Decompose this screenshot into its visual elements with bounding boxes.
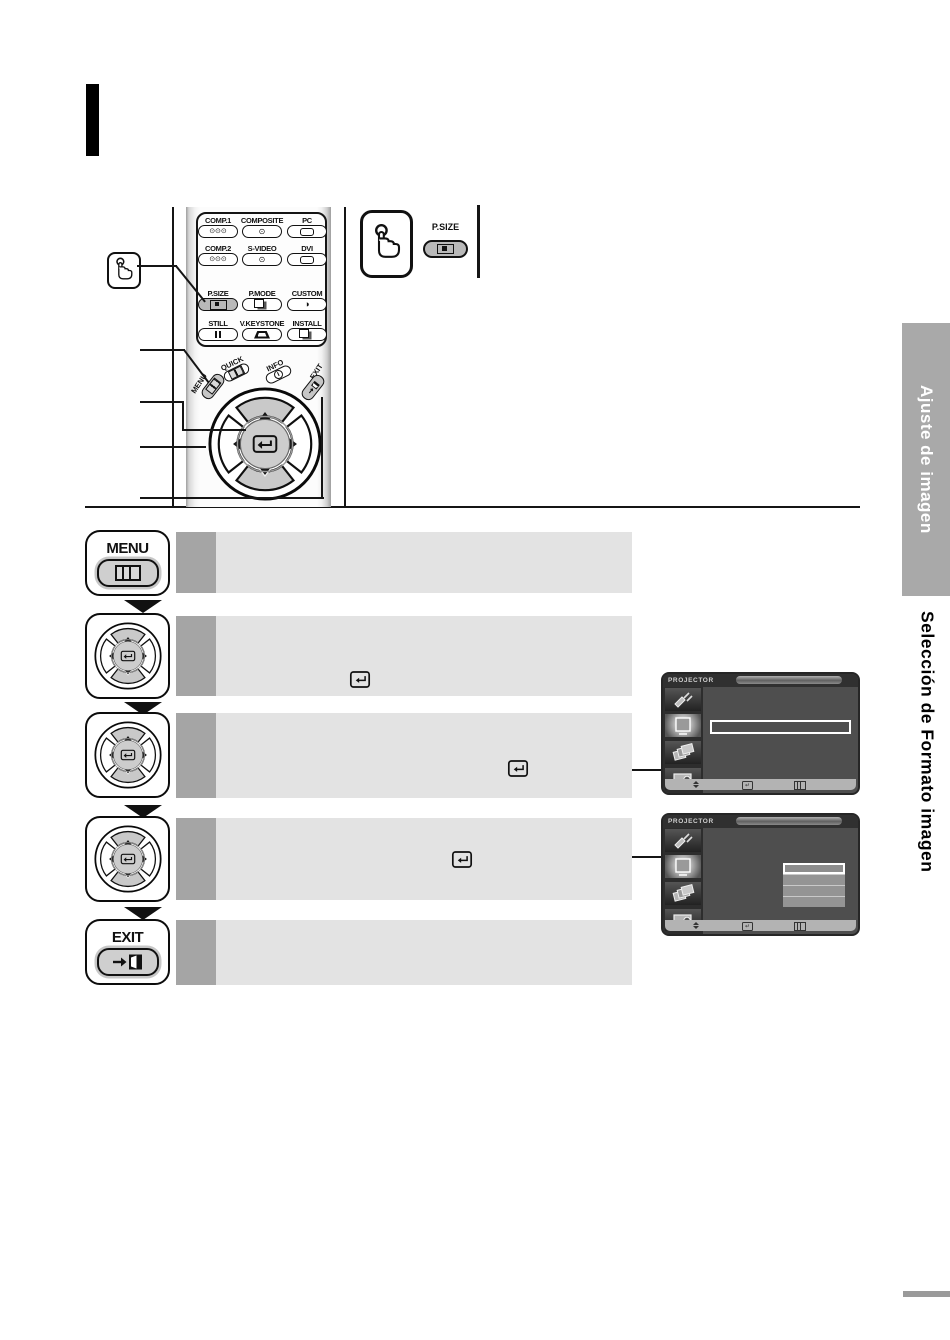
- step5-instruction-row: [176, 920, 632, 985]
- step-number-box: [176, 616, 216, 696]
- move-updown-icon: [693, 781, 699, 788]
- picture-size-icon: [437, 244, 454, 254]
- step-text-bar: [216, 920, 632, 985]
- triple-rca-icon: [209, 256, 227, 263]
- picture-icon: [665, 855, 701, 878]
- step2-dpad-key: [85, 613, 170, 699]
- layers-icon: [665, 741, 701, 764]
- enter-key-icon: [507, 760, 529, 777]
- osd-title: PROJECTOR: [668, 677, 714, 684]
- exit-key-label: EXIT: [112, 929, 143, 946]
- step-number-box: [176, 713, 216, 798]
- page-footer-bar: [903, 1291, 950, 1297]
- section-subtitle: Selección de Formato imagen: [906, 612, 948, 872]
- step2-instruction-row: [176, 616, 632, 696]
- step-text-bar: [216, 713, 632, 798]
- step-text-bar: [216, 616, 632, 696]
- osd-title-pill: [736, 817, 842, 825]
- picture-size-icon: [210, 300, 227, 310]
- input-source-icon: [665, 688, 701, 711]
- enter-icon: ↵: [742, 781, 753, 790]
- osd-bottom-bar: ↵: [665, 779, 856, 790]
- menu-icon: [794, 781, 806, 790]
- layers-icon: [665, 882, 701, 905]
- step-text-bar: [216, 818, 632, 900]
- remote-button-comp2: COMP.2: [195, 244, 241, 266]
- remote-button-install: INSTALL: [284, 319, 330, 341]
- remote-button-composite: COMPOSITE: [239, 216, 285, 238]
- step3-instruction-row: [176, 713, 632, 798]
- enter-icon: ↵: [742, 922, 753, 931]
- enter-key-icon: [451, 851, 473, 868]
- connector-line-screen1: [632, 769, 662, 771]
- dpad-icon: [93, 824, 163, 894]
- dsub-connector-icon: [300, 228, 314, 236]
- osd-sidebar: [663, 687, 703, 793]
- menu-key-label: MENU: [106, 540, 148, 557]
- remote-button-dvi: DVI: [284, 244, 330, 266]
- chapter-tab-label: Ajuste de imagen: [916, 385, 936, 534]
- press-button-hand-icon: [360, 210, 413, 278]
- info-icon: [272, 368, 284, 380]
- callout-line-exit-h: [140, 497, 324, 499]
- menu-grid-icon: [115, 565, 141, 581]
- connector-line-screen2: [632, 856, 662, 858]
- input-source-icon: [665, 829, 701, 852]
- callout-line-exit-v: [321, 397, 323, 499]
- osd-bottom-bar: ↵: [665, 920, 856, 931]
- remote-button-still: STILL: [195, 319, 241, 341]
- callout-line-enter-v: [182, 401, 184, 431]
- step1-menu-key: MENU: [85, 530, 170, 596]
- osd-title-pill: [736, 676, 842, 684]
- osd-sidebar: [663, 828, 703, 934]
- osd-option: [783, 896, 845, 907]
- move-updown-icon: [693, 922, 699, 929]
- dvi-connector-icon: [300, 256, 314, 264]
- dpad-icon: [93, 621, 163, 691]
- osd-option: [783, 885, 845, 896]
- triple-rca-icon: [209, 228, 227, 235]
- step1-instruction-row: [176, 532, 632, 593]
- pause-icon: [215, 331, 221, 338]
- dpad-icon: [93, 720, 163, 790]
- keystone-trapezoid-icon: [254, 331, 270, 339]
- step-text-bar: [216, 532, 632, 593]
- contrast-icon: [304, 300, 309, 309]
- osd-option: [783, 874, 845, 885]
- chapter-marker-bar: [86, 84, 99, 156]
- step-number-box: [176, 818, 216, 900]
- remote-button-svideo: S-VIDEO: [239, 244, 285, 266]
- callout-line-enter-h2: [182, 429, 246, 431]
- step3-dpad-key: [85, 712, 170, 798]
- psize-callout-button: [423, 240, 468, 258]
- manual-page: { "page": { "right_tab": "Ajuste de imag…: [0, 0, 950, 1340]
- enter-key-icon: [349, 671, 371, 688]
- remote-dpad: [206, 385, 324, 503]
- osd-option-selected: [783, 863, 845, 874]
- osd-screen-1: PROJECTOR ↵: [661, 672, 860, 795]
- chapter-tab: Ajuste de imagen: [902, 323, 950, 596]
- remote-button-panel: COMP.1 COMPOSITE PC COMP.2 S-VIDEO DVI P…: [196, 212, 327, 347]
- osd-selection-bar: [710, 720, 851, 734]
- osd-option-list: [783, 863, 845, 907]
- remote-control-figure: COMP.1 COMPOSITE PC COMP.2 S-VIDEO DVI P…: [186, 207, 331, 507]
- figure-middle-border: [344, 207, 346, 507]
- install-flip-icon: [299, 329, 309, 338]
- remote-button-custom: CUSTOM: [284, 289, 330, 311]
- osd-screen-2: PROJECTOR ↵: [661, 813, 860, 936]
- step-number-box: [176, 532, 216, 593]
- button-label: COMP.1: [205, 216, 231, 225]
- figure-left-border: [172, 207, 174, 507]
- remote-button-comp1: COMP.1: [195, 216, 241, 238]
- callout-line-menu: [140, 349, 185, 351]
- svideo-connector-icon: [259, 256, 266, 264]
- step-number-box: [176, 920, 216, 985]
- osd-title: PROJECTOR: [668, 818, 714, 825]
- step4-dpad-key: [85, 816, 170, 902]
- callout-line-enter: [140, 401, 184, 403]
- callout-line-hand: [137, 265, 177, 267]
- menu-icon: [794, 922, 806, 931]
- down-arrow: [124, 600, 162, 613]
- remote-button-vkeystone: V.KEYSTONE: [239, 319, 285, 341]
- callout-line-left-arrow: [140, 446, 206, 448]
- remote-button-pc: PC: [284, 216, 330, 238]
- exit-door-icon: [111, 953, 145, 971]
- remote-button-pmode: P.MODE: [239, 289, 285, 311]
- psize-callout-label: P.SIZE: [423, 222, 468, 232]
- press-button-hand-icon: [107, 252, 141, 289]
- step4-instruction-row: [176, 818, 632, 900]
- picture-mode-icon: [254, 299, 264, 308]
- picture-icon: [665, 714, 701, 737]
- rca-icon: [259, 228, 266, 236]
- step5-exit-key: EXIT: [85, 919, 170, 985]
- section-subtitle-label: Selección de Formato imagen: [917, 611, 938, 872]
- callout-right-border: [477, 205, 480, 278]
